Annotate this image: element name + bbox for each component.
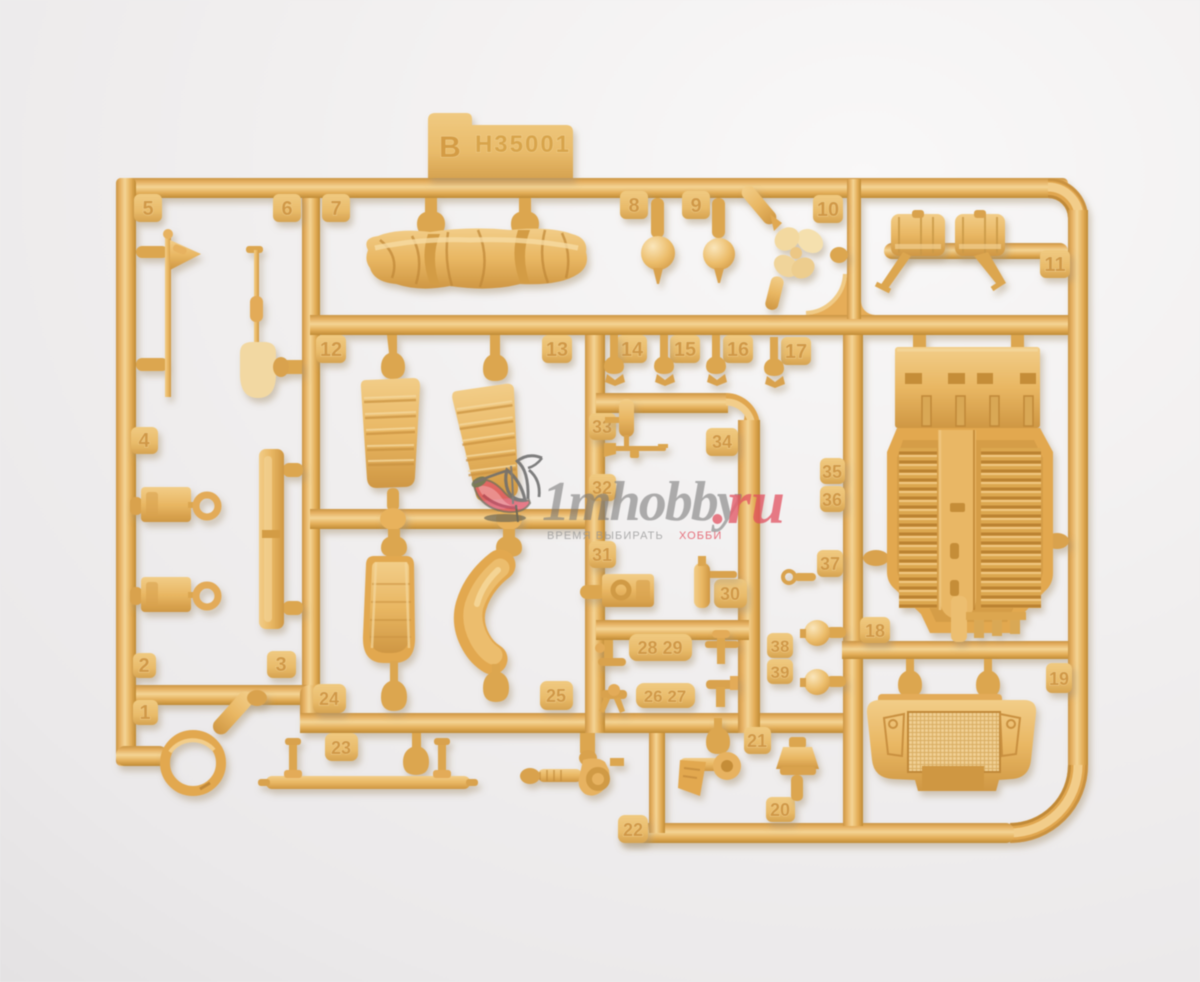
svg-text:.ru: .ru — [712, 470, 785, 537]
svg-text:3: 3 — [275, 654, 286, 676]
svg-text:21: 21 — [747, 731, 767, 751]
svg-text:11: 11 — [1044, 254, 1065, 276]
svg-text:35: 35 — [822, 462, 842, 482]
svg-text:ХОББИ: ХОББИ — [679, 530, 722, 542]
svg-text:10: 10 — [817, 199, 839, 221]
svg-text:30: 30 — [720, 584, 740, 604]
svg-text:9: 9 — [690, 195, 701, 217]
svg-text:15: 15 — [674, 339, 696, 361]
svg-text:7: 7 — [330, 198, 341, 220]
svg-text:6: 6 — [281, 198, 292, 220]
svg-text:19: 19 — [1049, 669, 1069, 689]
svg-text:B: B — [439, 131, 461, 164]
svg-text:24: 24 — [319, 689, 339, 709]
svg-text:8: 8 — [628, 195, 639, 217]
svg-text:2: 2 — [138, 655, 149, 677]
svg-text:1: 1 — [139, 702, 150, 724]
svg-text:37: 37 — [820, 554, 840, 574]
svg-text:36: 36 — [822, 490, 842, 510]
svg-text:13: 13 — [546, 339, 568, 361]
svg-text:38: 38 — [771, 637, 790, 656]
svg-text:26 27: 26 27 — [644, 687, 687, 706]
svg-text:12: 12 — [320, 339, 342, 361]
svg-text:5: 5 — [142, 198, 153, 220]
svg-text:17: 17 — [785, 341, 807, 363]
svg-text:34: 34 — [712, 432, 732, 452]
svg-text:31: 31 — [592, 545, 612, 565]
svg-text:H35001: H35001 — [475, 131, 571, 158]
svg-text:16: 16 — [727, 339, 749, 361]
svg-text:18: 18 — [865, 621, 885, 641]
svg-text:28 29: 28 29 — [637, 638, 682, 658]
svg-text:39: 39 — [771, 663, 790, 682]
svg-text:4: 4 — [138, 430, 150, 452]
svg-text:14: 14 — [621, 339, 644, 361]
svg-text:22: 22 — [623, 820, 643, 840]
svg-text:25: 25 — [546, 686, 566, 706]
svg-text:23: 23 — [331, 738, 351, 758]
svg-text:20: 20 — [770, 800, 790, 820]
svg-text:ВРЕМЯ ВЫБИРАТЬ: ВРЕМЯ ВЫБИРАТЬ — [547, 530, 664, 542]
